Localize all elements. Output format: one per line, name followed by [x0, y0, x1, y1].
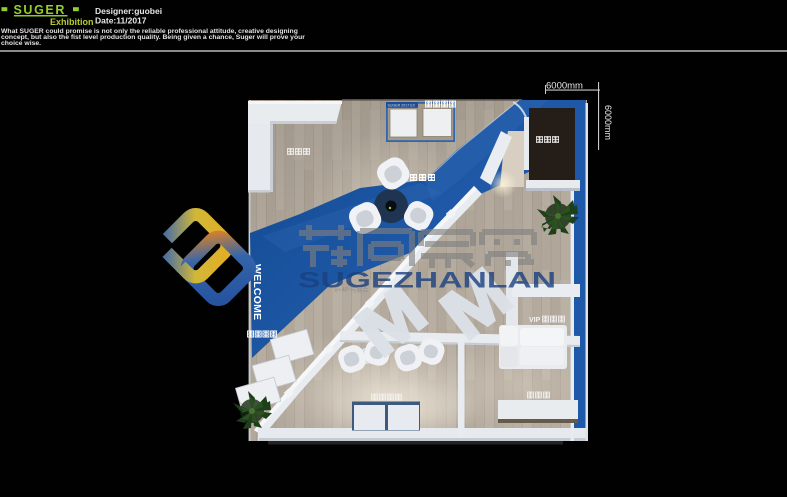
svg-text:Designer:guobei: Designer:guobei [95, 6, 162, 16]
svg-text:choice wise.: choice wise. [1, 40, 41, 47]
svg-text:concept, but also the fist lev: concept, but also the fist level product… [1, 34, 305, 41]
svg-text:6000mm: 6000mm [603, 105, 613, 140]
svg-text:Date:11/2017: Date:11/2017 [95, 16, 147, 26]
svg-text:SUGER: SUGER [14, 3, 66, 17]
svg-text:VIP: VIP [529, 317, 541, 324]
svg-text:Exhibition: Exhibition [50, 17, 94, 27]
svg-text:V+4P 与展会: V+4P 与展会 [334, 286, 368, 294]
svg-text:SUGER 2017 EX: SUGER 2017 EX [388, 104, 416, 108]
